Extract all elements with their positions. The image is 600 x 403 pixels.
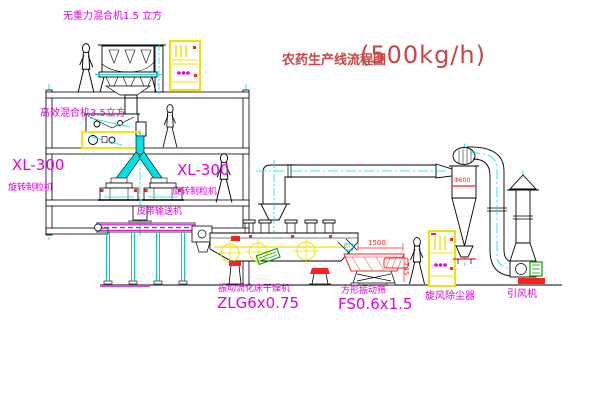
indicator-light bbox=[291, 235, 294, 238]
gravity-mixer-label: 无重力混合机1.5 立方 bbox=[63, 12, 162, 23]
indicator-light bbox=[101, 189, 104, 192]
person-figure bbox=[163, 105, 177, 148]
rotary-granulator-left bbox=[98, 183, 140, 200]
indicator-light bbox=[431, 233, 436, 235]
person-figure bbox=[410, 238, 425, 284]
dryer-foot bbox=[229, 261, 241, 266]
indicator-light bbox=[439, 263, 443, 267]
roof-slab bbox=[46, 92, 249, 98]
mid-slab bbox=[46, 148, 249, 154]
indicator-light bbox=[450, 267, 453, 270]
indicator-light bbox=[194, 74, 197, 77]
indicator-light bbox=[329, 235, 332, 238]
granulator-left-model-label: XL-300 bbox=[12, 158, 64, 174]
indicator-light bbox=[186, 71, 190, 75]
induced-draft-fan bbox=[510, 261, 545, 284]
belt-pulley bbox=[95, 224, 102, 231]
lower-slab bbox=[46, 200, 249, 206]
screen-length-dimension: 1500 bbox=[368, 240, 386, 247]
control-cabinet-top bbox=[170, 41, 200, 90]
indicator-light bbox=[134, 189, 137, 192]
indicator-light bbox=[145, 189, 148, 192]
fan-base bbox=[518, 278, 545, 284]
square-vibrating-screen bbox=[344, 243, 408, 285]
indicator-light bbox=[249, 235, 252, 238]
high-eff-mixer-label: 高效混合机3.5立方 bbox=[40, 109, 126, 120]
indicator-light bbox=[193, 46, 196, 49]
granulator-feed-pipe bbox=[109, 136, 169, 183]
cyclone-diameter-dimension: Φ600 bbox=[454, 178, 470, 184]
person-figure bbox=[78, 44, 94, 93]
control-cabinet-right bbox=[429, 231, 455, 286]
dryer-model-label: ZLG6x0.75 bbox=[217, 296, 299, 312]
fan-label: 引风机 bbox=[507, 290, 537, 301]
indicator-light bbox=[450, 238, 453, 241]
granulator-left-name-label: 旋转制粒机 bbox=[8, 184, 53, 193]
dryer-top-ports bbox=[243, 220, 335, 233]
conveyor-legs bbox=[104, 232, 187, 284]
indicator-light bbox=[177, 71, 181, 75]
indicator-light bbox=[182, 71, 186, 75]
screen-model-label: FS0.6x1.5 bbox=[338, 297, 412, 313]
screen-height-dimension: 745 bbox=[402, 262, 409, 275]
granulator-right-name-label: 旋转制粒机 bbox=[172, 188, 217, 197]
mixer-outlet bbox=[136, 122, 146, 136]
indicator-light bbox=[434, 263, 438, 267]
indicator-light bbox=[443, 263, 447, 267]
screen-base bbox=[353, 271, 395, 283]
feed-inlet-mark bbox=[231, 236, 240, 241]
belt-conveyor bbox=[95, 223, 213, 284]
belt-conveyor-label: 皮带输送机 bbox=[137, 208, 182, 217]
granulator-right-model-label: XL-300 bbox=[177, 163, 229, 179]
drawing-title-capacity: (500kg/h) bbox=[360, 43, 486, 68]
stack-cap bbox=[510, 175, 536, 189]
cad-drawing: 无重力混合机1.5 立方 农药生产线流程图 (500kg/h) 高效混合机3.5… bbox=[0, 0, 600, 403]
cyclone-label: 旋风除尘器 bbox=[425, 292, 475, 303]
dryer-foot bbox=[310, 268, 330, 274]
cyclone-outlet-top bbox=[453, 148, 475, 165]
